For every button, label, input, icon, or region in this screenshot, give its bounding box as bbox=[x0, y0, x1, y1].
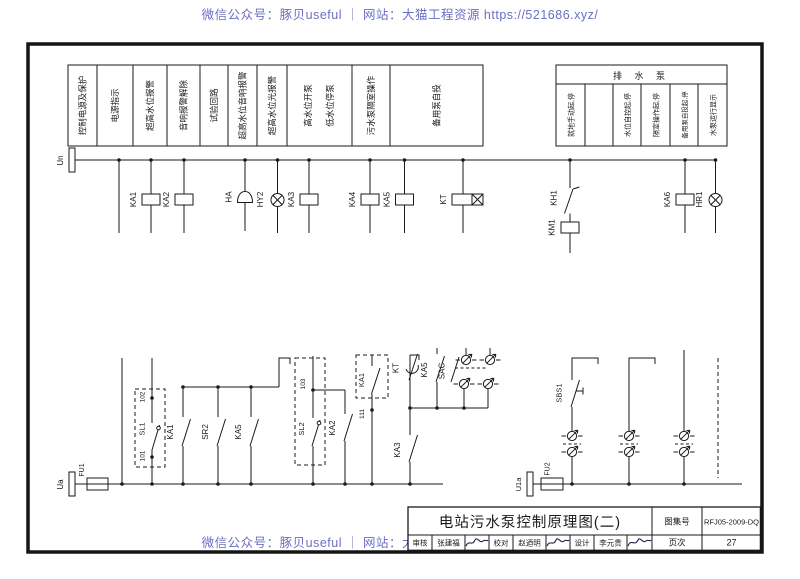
component-label: KA5 bbox=[383, 191, 392, 207]
component-label: KA3 bbox=[393, 442, 402, 458]
function-label: 音响报警解除 bbox=[179, 80, 189, 132]
plug-icon bbox=[562, 430, 583, 440]
terminal-label: 102 bbox=[140, 391, 147, 402]
approval-name: 张建福 bbox=[437, 538, 460, 548]
plug-icon bbox=[674, 430, 695, 440]
lamp-icon-hy2 bbox=[271, 194, 284, 207]
component-label: HY2 bbox=[256, 191, 265, 207]
coil-ka4 bbox=[361, 194, 379, 205]
approval-name: 李元贵 bbox=[599, 538, 622, 548]
component-label: SBS1 bbox=[555, 383, 564, 402]
terminal-label: 111 bbox=[359, 409, 366, 419]
coil-ka6 bbox=[676, 194, 694, 205]
component-label: HA bbox=[225, 191, 234, 203]
function-label: 控制电源及保护 bbox=[78, 76, 88, 136]
component-label: KA3 bbox=[287, 191, 296, 207]
function-label: 超高水位报警 bbox=[145, 80, 155, 132]
coil-ka5 bbox=[396, 194, 414, 205]
atlas-number: RFJ05-2009-DQ bbox=[704, 518, 759, 527]
function-labels: 控制电源及保护 电源指示 超高水位报警 音响报警解除 试验回路 超高水位音响报警… bbox=[78, 71, 442, 140]
plug-icon bbox=[674, 446, 695, 456]
component-label: KA6 bbox=[663, 191, 672, 207]
approval-name: 赵迺明 bbox=[518, 538, 541, 548]
coil-ka1 bbox=[142, 194, 160, 205]
component-label: SL1 bbox=[138, 422, 147, 435]
component-label: KA5 bbox=[234, 424, 243, 440]
component-label: FU1 bbox=[79, 463, 86, 476]
component-label: KA1 bbox=[129, 191, 138, 207]
sl2-box bbox=[295, 358, 325, 465]
plug-icon bbox=[619, 446, 640, 456]
watermark-top: 微信公众号：豚贝useful ｜ 网站：大猫工程资源 https://52168… bbox=[202, 7, 599, 22]
plug-icon bbox=[619, 430, 640, 440]
function-label: 电源指示 bbox=[110, 88, 120, 122]
float-switch-bump bbox=[317, 421, 321, 425]
bus-label: Ua bbox=[56, 479, 65, 490]
component-label: SAC bbox=[438, 363, 447, 380]
component-label: KH1 bbox=[550, 190, 559, 206]
component-label: FU2 bbox=[545, 462, 552, 475]
component-label: KM1 bbox=[548, 219, 557, 236]
coil-km1 bbox=[561, 222, 579, 233]
float-switch-bump bbox=[157, 426, 161, 430]
lamp-icon-hr1 bbox=[709, 194, 722, 207]
plug-icon bbox=[480, 354, 501, 364]
title-block: 电站污水泵控制原理图(二) 图集号 RFJ05-2009-DQ 页次 27 审核… bbox=[408, 507, 760, 550]
terminal-label: 101 bbox=[140, 450, 147, 461]
plug-icon bbox=[562, 446, 583, 456]
pump-table-column: 备用泵自投起,停 bbox=[680, 91, 689, 139]
drawing-title: 电站污水泵控制原理图(二) bbox=[439, 514, 621, 531]
component-label: KA5 bbox=[420, 362, 429, 378]
coil-kt bbox=[452, 194, 472, 205]
coil-ka3 bbox=[300, 194, 318, 205]
pump-table-column: 水位自控起,停 bbox=[623, 93, 632, 137]
plug-icon bbox=[478, 378, 499, 388]
function-label: 超高水位光报警 bbox=[267, 75, 277, 135]
schematic-canvas: 微信公众号：豚贝useful ｜ 网站：大猫工程资源 https://52168… bbox=[0, 0, 800, 579]
pump-table-column: 隔室操作起,停 bbox=[652, 93, 661, 137]
top-circuit-wires bbox=[75, 160, 716, 253]
drawing-frame bbox=[28, 44, 762, 552]
component-label: SL2 bbox=[297, 422, 306, 435]
function-label: 低水位停泵 bbox=[325, 84, 335, 127]
sbs1-operator bbox=[577, 388, 584, 395]
bell-icon bbox=[238, 192, 253, 203]
pump-table-column: 水泵运行显示 bbox=[709, 94, 718, 136]
bus-label: U1a bbox=[514, 477, 523, 492]
approval-label: 设计 bbox=[575, 538, 590, 548]
component-label: KA2 bbox=[328, 420, 337, 436]
approval-label: 审核 bbox=[413, 538, 428, 548]
function-label: 试验回路 bbox=[209, 88, 219, 123]
scanned-drawing-page: 微信公众号：豚贝useful ｜ 网站：大猫工程资源 https://52168… bbox=[0, 0, 800, 579]
component-label: KA1 bbox=[357, 373, 366, 387]
component-label: KA2 bbox=[162, 191, 171, 207]
function-label: 污水泵隔室操作 bbox=[366, 75, 376, 135]
component-labels: Un KA1 KA2 HA HY2 KA3 KA4 KA5 KT KH1 KM1… bbox=[56, 155, 704, 491]
component-label: KT bbox=[392, 363, 401, 373]
component-label: HR1 bbox=[695, 191, 704, 208]
component-label: KT bbox=[439, 194, 448, 204]
component-label: KA4 bbox=[348, 191, 357, 207]
function-label: 备用泵自投 bbox=[432, 84, 442, 127]
plug-connectors bbox=[454, 354, 695, 456]
coil-ka2 bbox=[175, 194, 193, 205]
atlas-label: 图集号 bbox=[664, 517, 690, 527]
bottom-circuit-wires bbox=[75, 348, 742, 484]
page-number: 27 bbox=[726, 538, 736, 548]
page-label: 页次 bbox=[668, 538, 686, 548]
plug-icon bbox=[454, 378, 475, 388]
pump-table-text: 排 水 泵 就地手动起,停 水位自控起,停 隔室操作起,停 备用泵自投起,停 水… bbox=[567, 70, 718, 139]
bus-label: Un bbox=[56, 155, 65, 165]
pump-table-header: 排 水 泵 bbox=[613, 70, 670, 81]
contact-symbols bbox=[152, 187, 580, 462]
pump-table-column: 就地手动起,停 bbox=[567, 93, 576, 137]
approval-label: 校对 bbox=[494, 538, 509, 548]
component-label: KA1 bbox=[166, 424, 175, 440]
function-label: 超高水位音响报警 bbox=[238, 71, 248, 140]
component-label: SR2 bbox=[201, 424, 210, 440]
function-label: 高水位开泵 bbox=[303, 84, 313, 127]
terminal-label: 103 bbox=[300, 378, 307, 389]
